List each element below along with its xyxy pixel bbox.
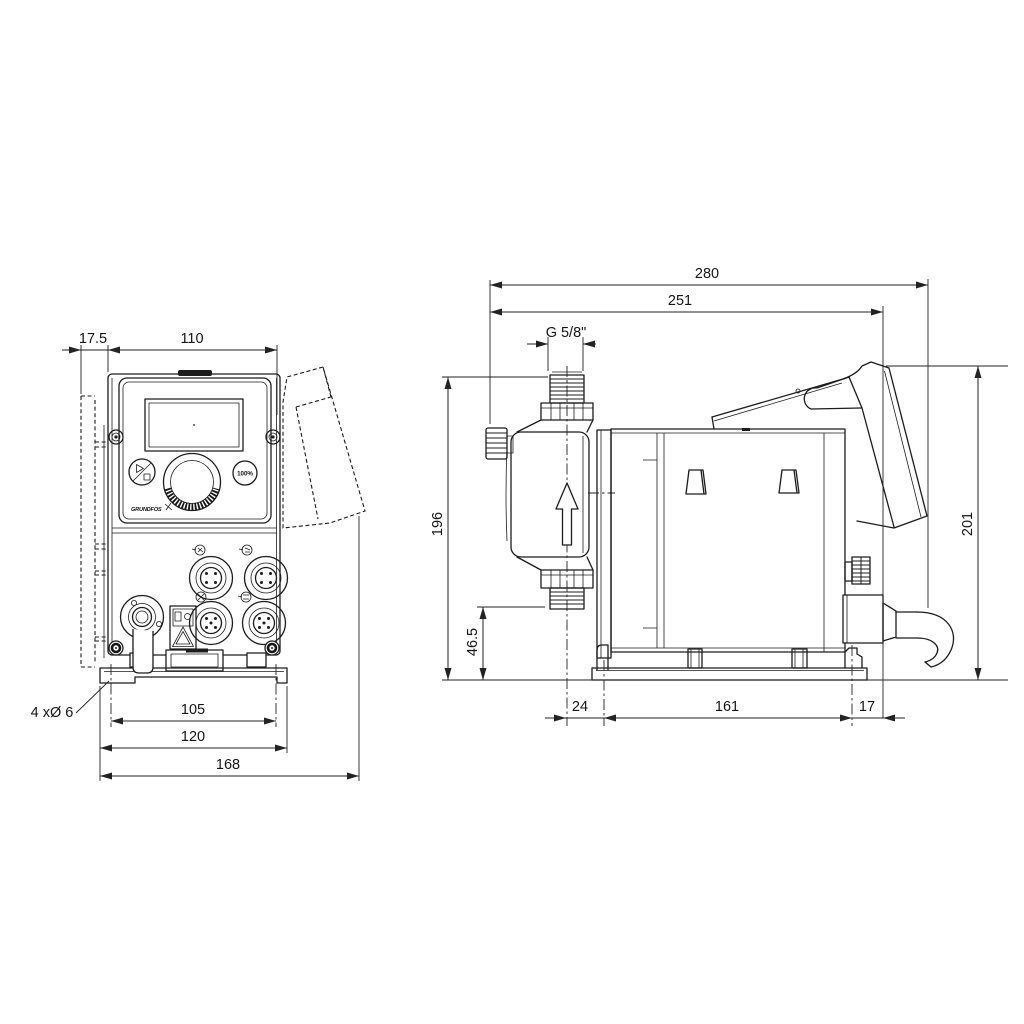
- dim-17-5: 17.5: [79, 331, 107, 347]
- dosing-head: [506, 432, 589, 557]
- hundred-percent-label: 100%: [237, 471, 253, 478]
- dim-251: 251: [668, 293, 692, 309]
- hundred-percent-button: 100%: [233, 461, 257, 485]
- wheel-knurl: [168, 489, 216, 507]
- drawing-canvas: 100% GRUNDFOS: [0, 0, 1024, 1024]
- mounting-plate-side: [592, 645, 867, 680]
- priming-knob: [486, 428, 513, 459]
- front-view: 100% GRUNDFOS: [31, 331, 365, 781]
- dim-201: 201: [960, 512, 976, 536]
- vent-clip: [779, 470, 799, 493]
- wall-plate-dashed-outline: [81, 396, 107, 667]
- dim-24: 24: [572, 699, 588, 715]
- dimension-drawing: 100% GRUNDFOS: [0, 0, 1024, 1024]
- display-cursor-dot: [193, 424, 195, 426]
- stop-icon: [144, 474, 150, 480]
- hinge-screws: [109, 430, 280, 444]
- dim-280: 280: [695, 266, 719, 282]
- power-cable: [133, 629, 153, 673]
- dim-thread: G 5/8": [546, 325, 587, 341]
- tilted-cube-dashed-outline: [283, 367, 365, 528]
- start-stop-button: [129, 459, 155, 485]
- vent-clip: [686, 470, 706, 494]
- m12-connector: [245, 557, 288, 600]
- connector-section: [190, 545, 288, 645]
- display: [145, 399, 243, 451]
- rear-foot: [845, 648, 862, 668]
- mains-cable: [917, 612, 954, 667]
- dim-120: 120: [181, 729, 205, 745]
- brand-logo: GRUNDFOS: [131, 503, 172, 513]
- control-panel: 100% GRUNDFOS: [109, 378, 280, 523]
- holes-label: 4 xØ 6: [31, 705, 74, 721]
- click-wheel: [164, 454, 221, 511]
- dim-168: 168: [216, 757, 240, 773]
- dim-196: 196: [430, 512, 446, 536]
- dim-110: 110: [180, 331, 203, 347]
- logo-mark: [165, 503, 172, 510]
- top-tab: [178, 370, 212, 376]
- mains-cable-gland: [843, 557, 954, 667]
- discharge-valve: [517, 372, 593, 432]
- logo-text: GRUNDFOS: [131, 507, 162, 513]
- pump-body-side: [611, 428, 845, 652]
- suction-valve: [517, 557, 593, 609]
- tilted-control-cube: [712, 362, 927, 528]
- m12-connector: [190, 557, 233, 600]
- side-view: 280 251 G 5/8" 196 46.5 201 24 161 17: [430, 266, 1008, 726]
- flow-direction-arrow-icon: [556, 483, 578, 545]
- m12-connector: [243, 602, 286, 645]
- dim-105: 105: [181, 702, 205, 718]
- dim-161: 161: [715, 699, 739, 715]
- dim-46-5: 46.5: [465, 628, 481, 656]
- dim-17: 17: [859, 699, 875, 715]
